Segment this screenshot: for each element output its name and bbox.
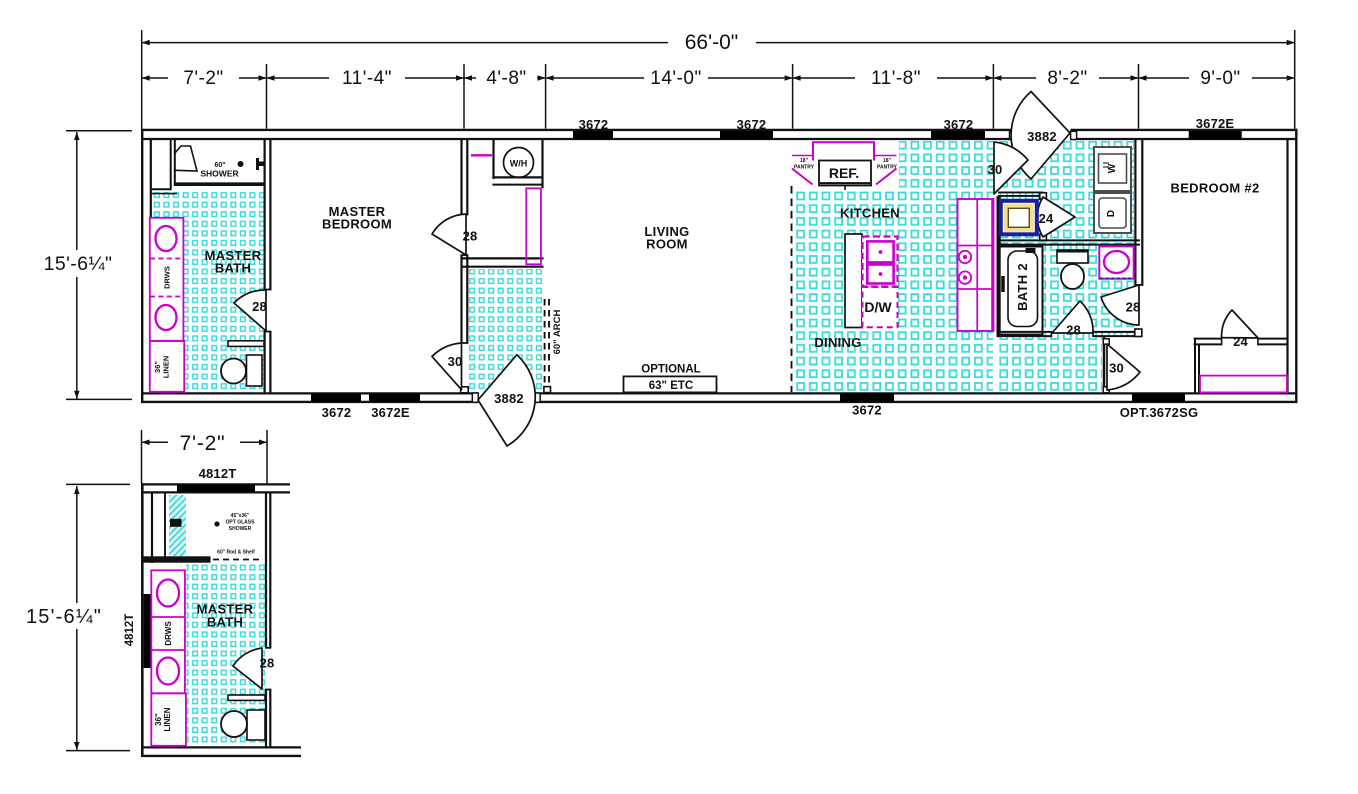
svg-text:OPT GLASS: OPT GLASS [226, 520, 256, 526]
svg-text:D: D [1106, 210, 1117, 217]
svg-text:7'-2": 7'-2" [183, 68, 223, 89]
svg-text:BEDROOM: BEDROOM [322, 217, 392, 232]
svg-text:36": 36" [154, 713, 163, 726]
svg-text:45"x36": 45"x36" [231, 513, 250, 519]
svg-text:BATH: BATH [215, 261, 251, 276]
svg-text:LINEN: LINEN [163, 707, 172, 731]
svg-text:3672E: 3672E [1196, 116, 1235, 131]
svg-text:60" Rod & Shelf: 60" Rod & Shelf [217, 550, 255, 556]
svg-text:66'-0": 66'-0" [685, 31, 739, 54]
svg-text:DINING: DINING [814, 335, 861, 350]
svg-text:11'-4": 11'-4" [342, 68, 392, 89]
svg-text:D/W: D/W [864, 299, 892, 315]
svg-text:3672: 3672 [737, 117, 767, 132]
svg-text:SHOWER: SHOWER [200, 169, 238, 179]
svg-text:LINEN: LINEN [162, 356, 171, 379]
svg-text:28: 28 [463, 229, 478, 244]
svg-text:W: W [1107, 163, 1118, 173]
svg-text:KITCHEN: KITCHEN [840, 206, 900, 221]
svg-text:4'-8": 4'-8" [486, 68, 526, 89]
svg-text:11'-8": 11'-8" [871, 68, 921, 89]
svg-text:PANTRY: PANTRY [877, 165, 898, 171]
svg-text:BATH: BATH [207, 615, 243, 630]
svg-text:3672: 3672 [944, 117, 974, 132]
svg-text:28: 28 [1066, 323, 1081, 338]
svg-text:15'-6¼": 15'-6¼" [26, 606, 102, 628]
svg-text:BATH 2: BATH 2 [1015, 263, 1030, 311]
svg-text:18": 18" [883, 158, 892, 164]
svg-text:3672: 3672 [852, 403, 882, 418]
svg-text:30: 30 [448, 354, 463, 369]
svg-text:15'-6¼": 15'-6¼" [44, 253, 113, 275]
svg-text:28: 28 [252, 299, 267, 314]
svg-text:18": 18" [800, 158, 809, 164]
svg-text:REF.: REF. [829, 165, 859, 181]
svg-text:63" ETC: 63" ETC [649, 380, 693, 392]
svg-text:30: 30 [1109, 361, 1124, 376]
svg-text:4812T: 4812T [124, 614, 136, 647]
svg-text:28: 28 [260, 656, 275, 671]
svg-text:28: 28 [1126, 300, 1141, 315]
svg-text:BEDROOM #2: BEDROOM #2 [1171, 181, 1260, 196]
svg-text:ROOM: ROOM [646, 237, 688, 252]
svg-text:9'-0": 9'-0" [1200, 68, 1240, 89]
svg-text:3672E: 3672E [371, 405, 410, 420]
svg-text:PANTRY: PANTRY [794, 165, 815, 171]
svg-text:OPTIONAL: OPTIONAL [641, 364, 700, 376]
svg-text:14'-0": 14'-0" [650, 68, 701, 89]
svg-text:3672: 3672 [579, 117, 609, 132]
svg-text:DRWS: DRWS [164, 621, 173, 646]
svg-text:SHOWER: SHOWER [229, 526, 252, 532]
svg-text:3882: 3882 [494, 391, 524, 406]
svg-text:DRWS: DRWS [163, 266, 172, 289]
svg-text:24: 24 [1039, 211, 1054, 226]
svg-text:7'-2": 7'-2" [180, 432, 226, 455]
svg-text:30: 30 [988, 162, 1003, 177]
svg-text:8'-2": 8'-2" [1047, 68, 1087, 89]
svg-text:OPT.3672SG: OPT.3672SG [1120, 405, 1199, 420]
svg-text:W/H: W/H [510, 159, 528, 169]
svg-text:4812T: 4812T [199, 466, 237, 481]
svg-text:3882: 3882 [1027, 129, 1057, 144]
svg-text:60" ARCH: 60" ARCH [552, 309, 563, 354]
svg-text:3672: 3672 [322, 405, 352, 420]
svg-text:24: 24 [1233, 334, 1248, 349]
